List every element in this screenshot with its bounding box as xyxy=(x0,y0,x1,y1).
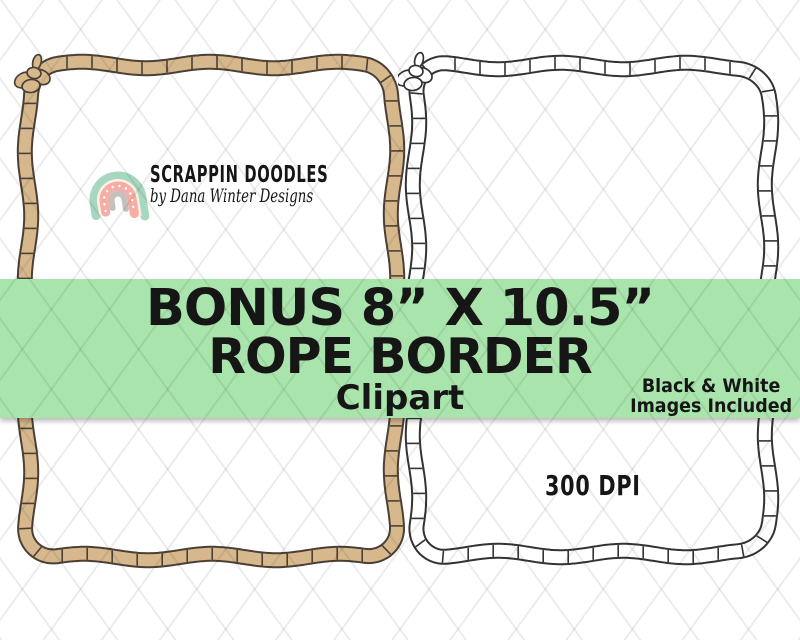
promo-banner: BONUS 8” X 10.5” ROPE BORDER Clipart Bla… xyxy=(0,279,800,418)
banner-title-text: ROPE BORDER xyxy=(0,334,800,379)
brand-logo: SCRAPPIN DOODLES by Dana Winter Designs xyxy=(150,163,429,207)
black-white-note-line1: Black & White xyxy=(630,376,792,396)
rainbow-arc-pink xyxy=(102,184,134,218)
banner-size-text: BONUS 8” X 10.5” xyxy=(0,284,800,334)
black-white-note: Black & White Images Included xyxy=(630,376,792,416)
rainbow-arc-inner xyxy=(111,193,126,211)
brand-byline: by Dana Winter Designs xyxy=(150,186,345,207)
rainbow-icon xyxy=(84,150,156,234)
dpi-label: 300 DPI xyxy=(545,469,641,502)
black-white-note-line2: Images Included xyxy=(630,396,792,416)
brand-name: SCRAPPIN DOODLES xyxy=(150,163,328,187)
product-image: SCRAPPIN DOODLES by Dana Winter Designs … xyxy=(0,0,800,640)
